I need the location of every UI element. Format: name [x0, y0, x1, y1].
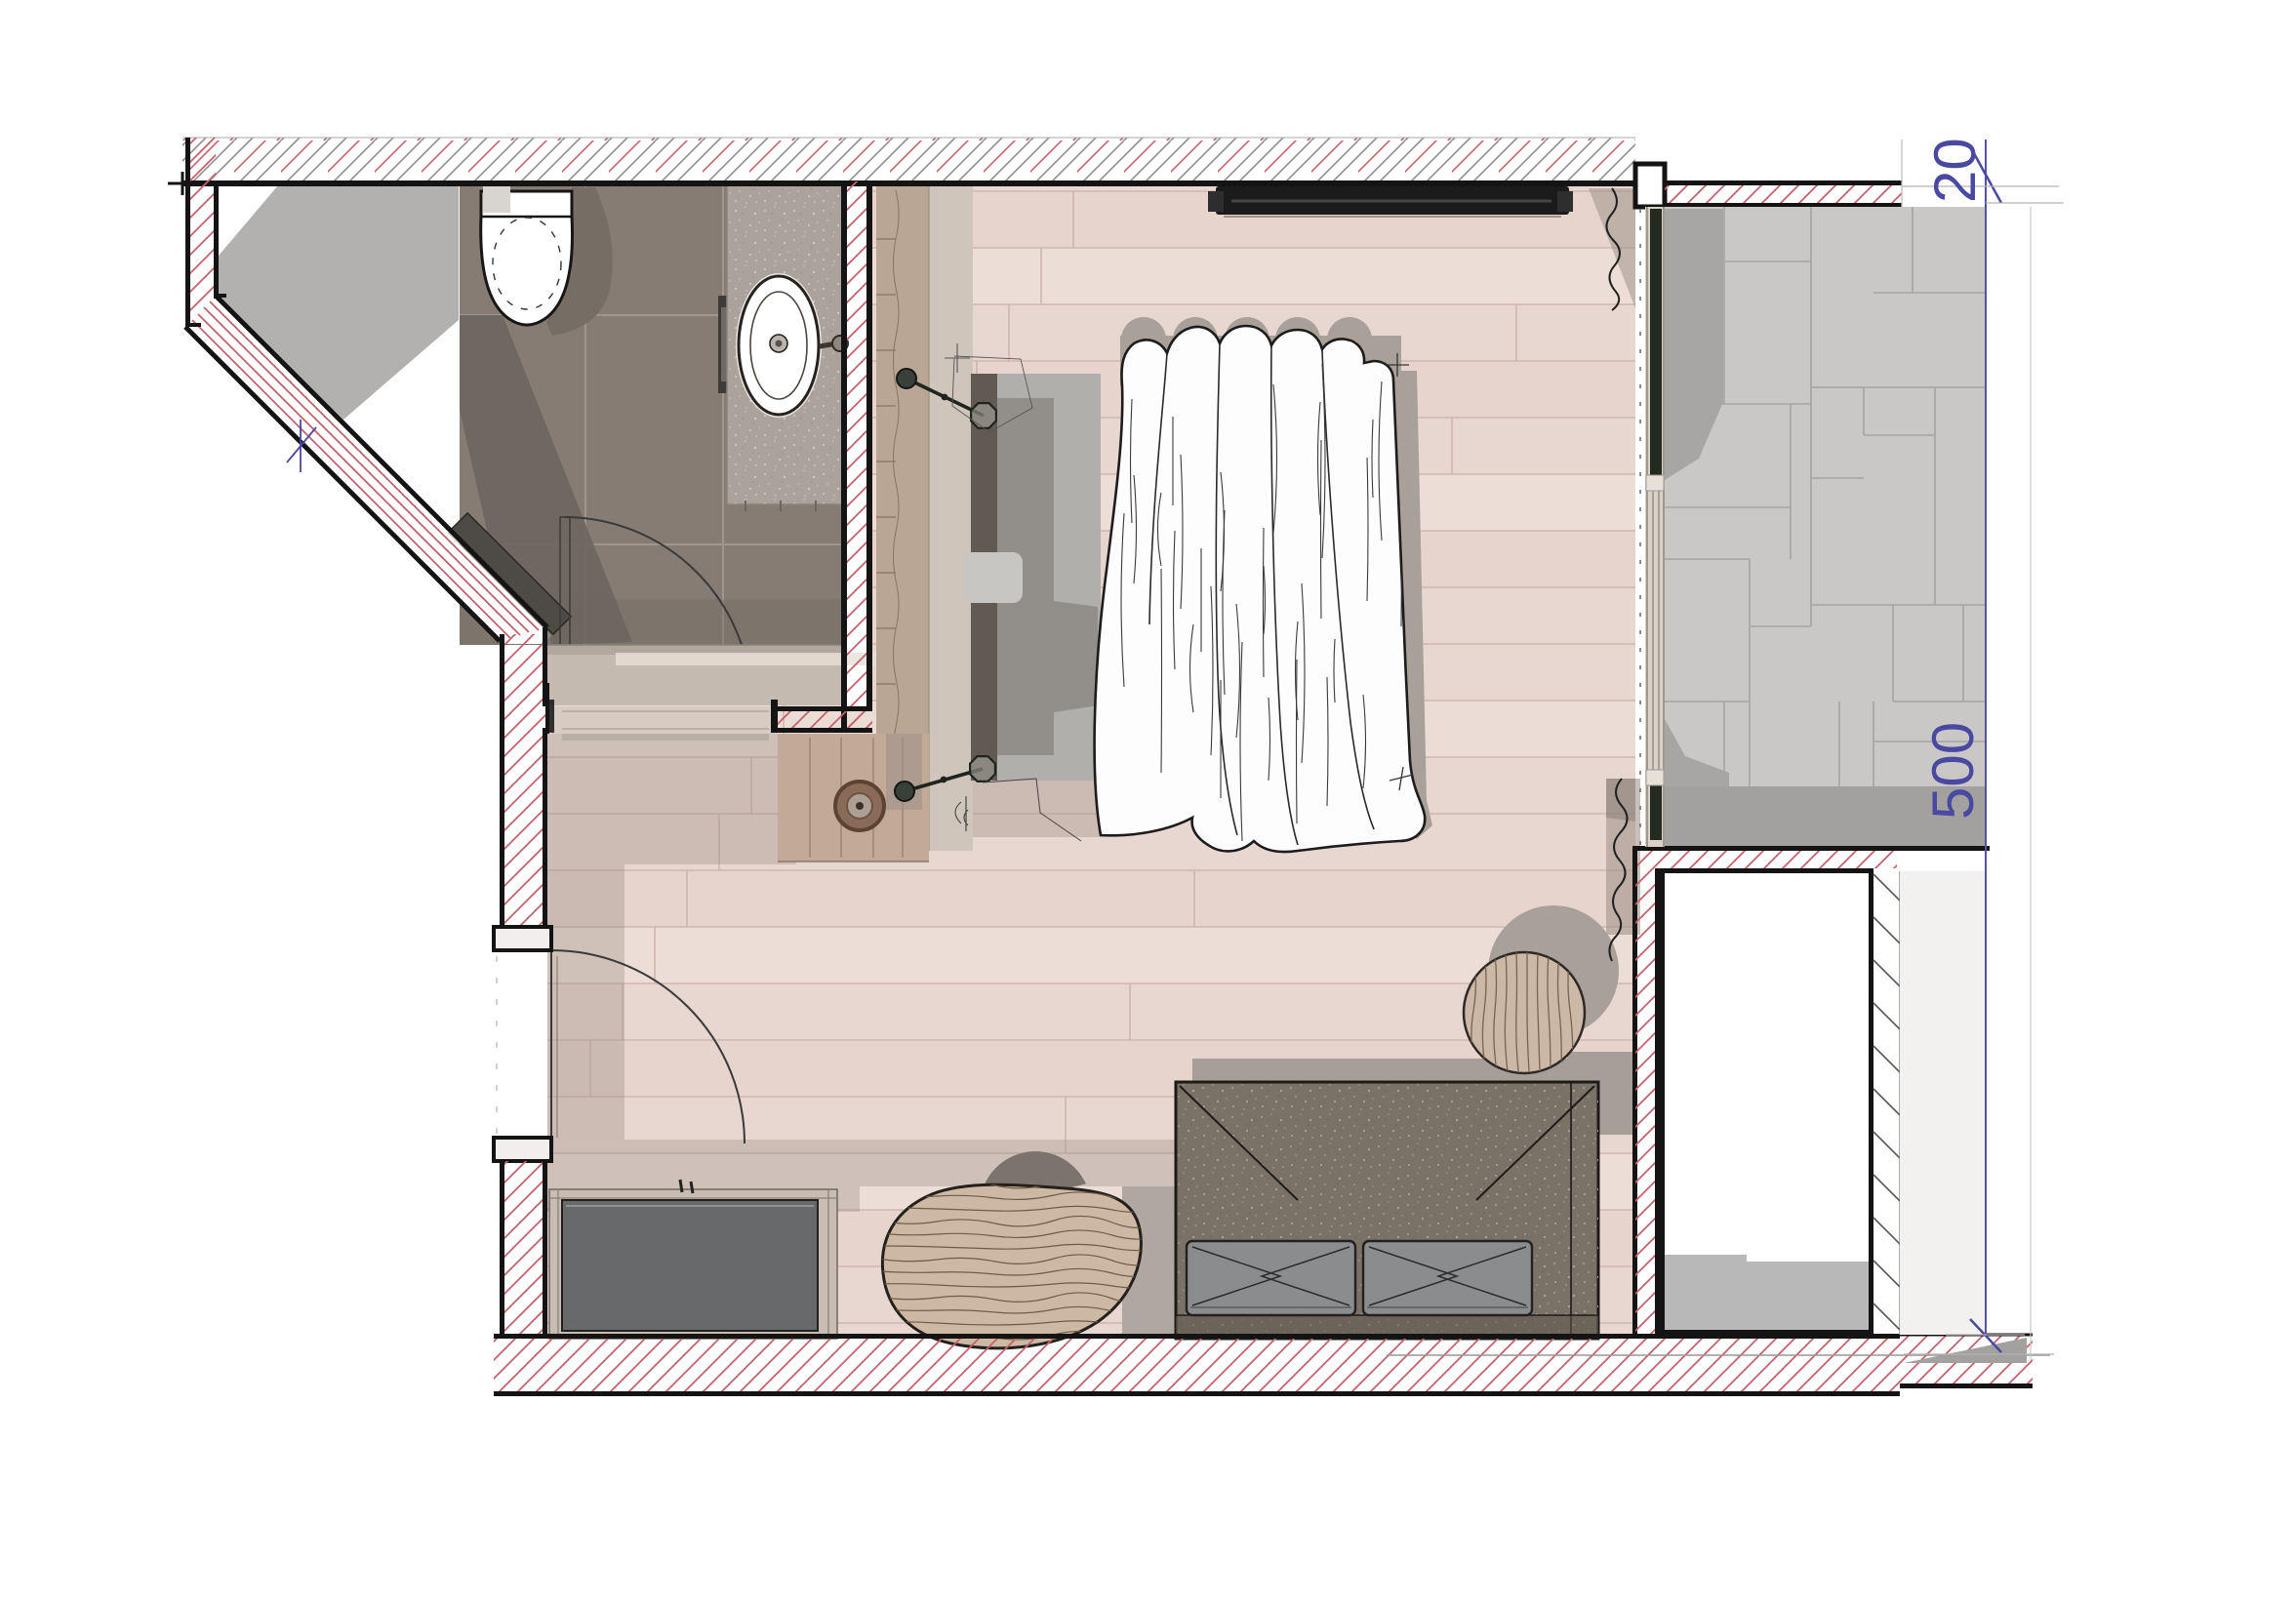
svg-text:500: 500 — [1920, 722, 1986, 820]
svg-text:20: 20 — [1922, 138, 1988, 203]
